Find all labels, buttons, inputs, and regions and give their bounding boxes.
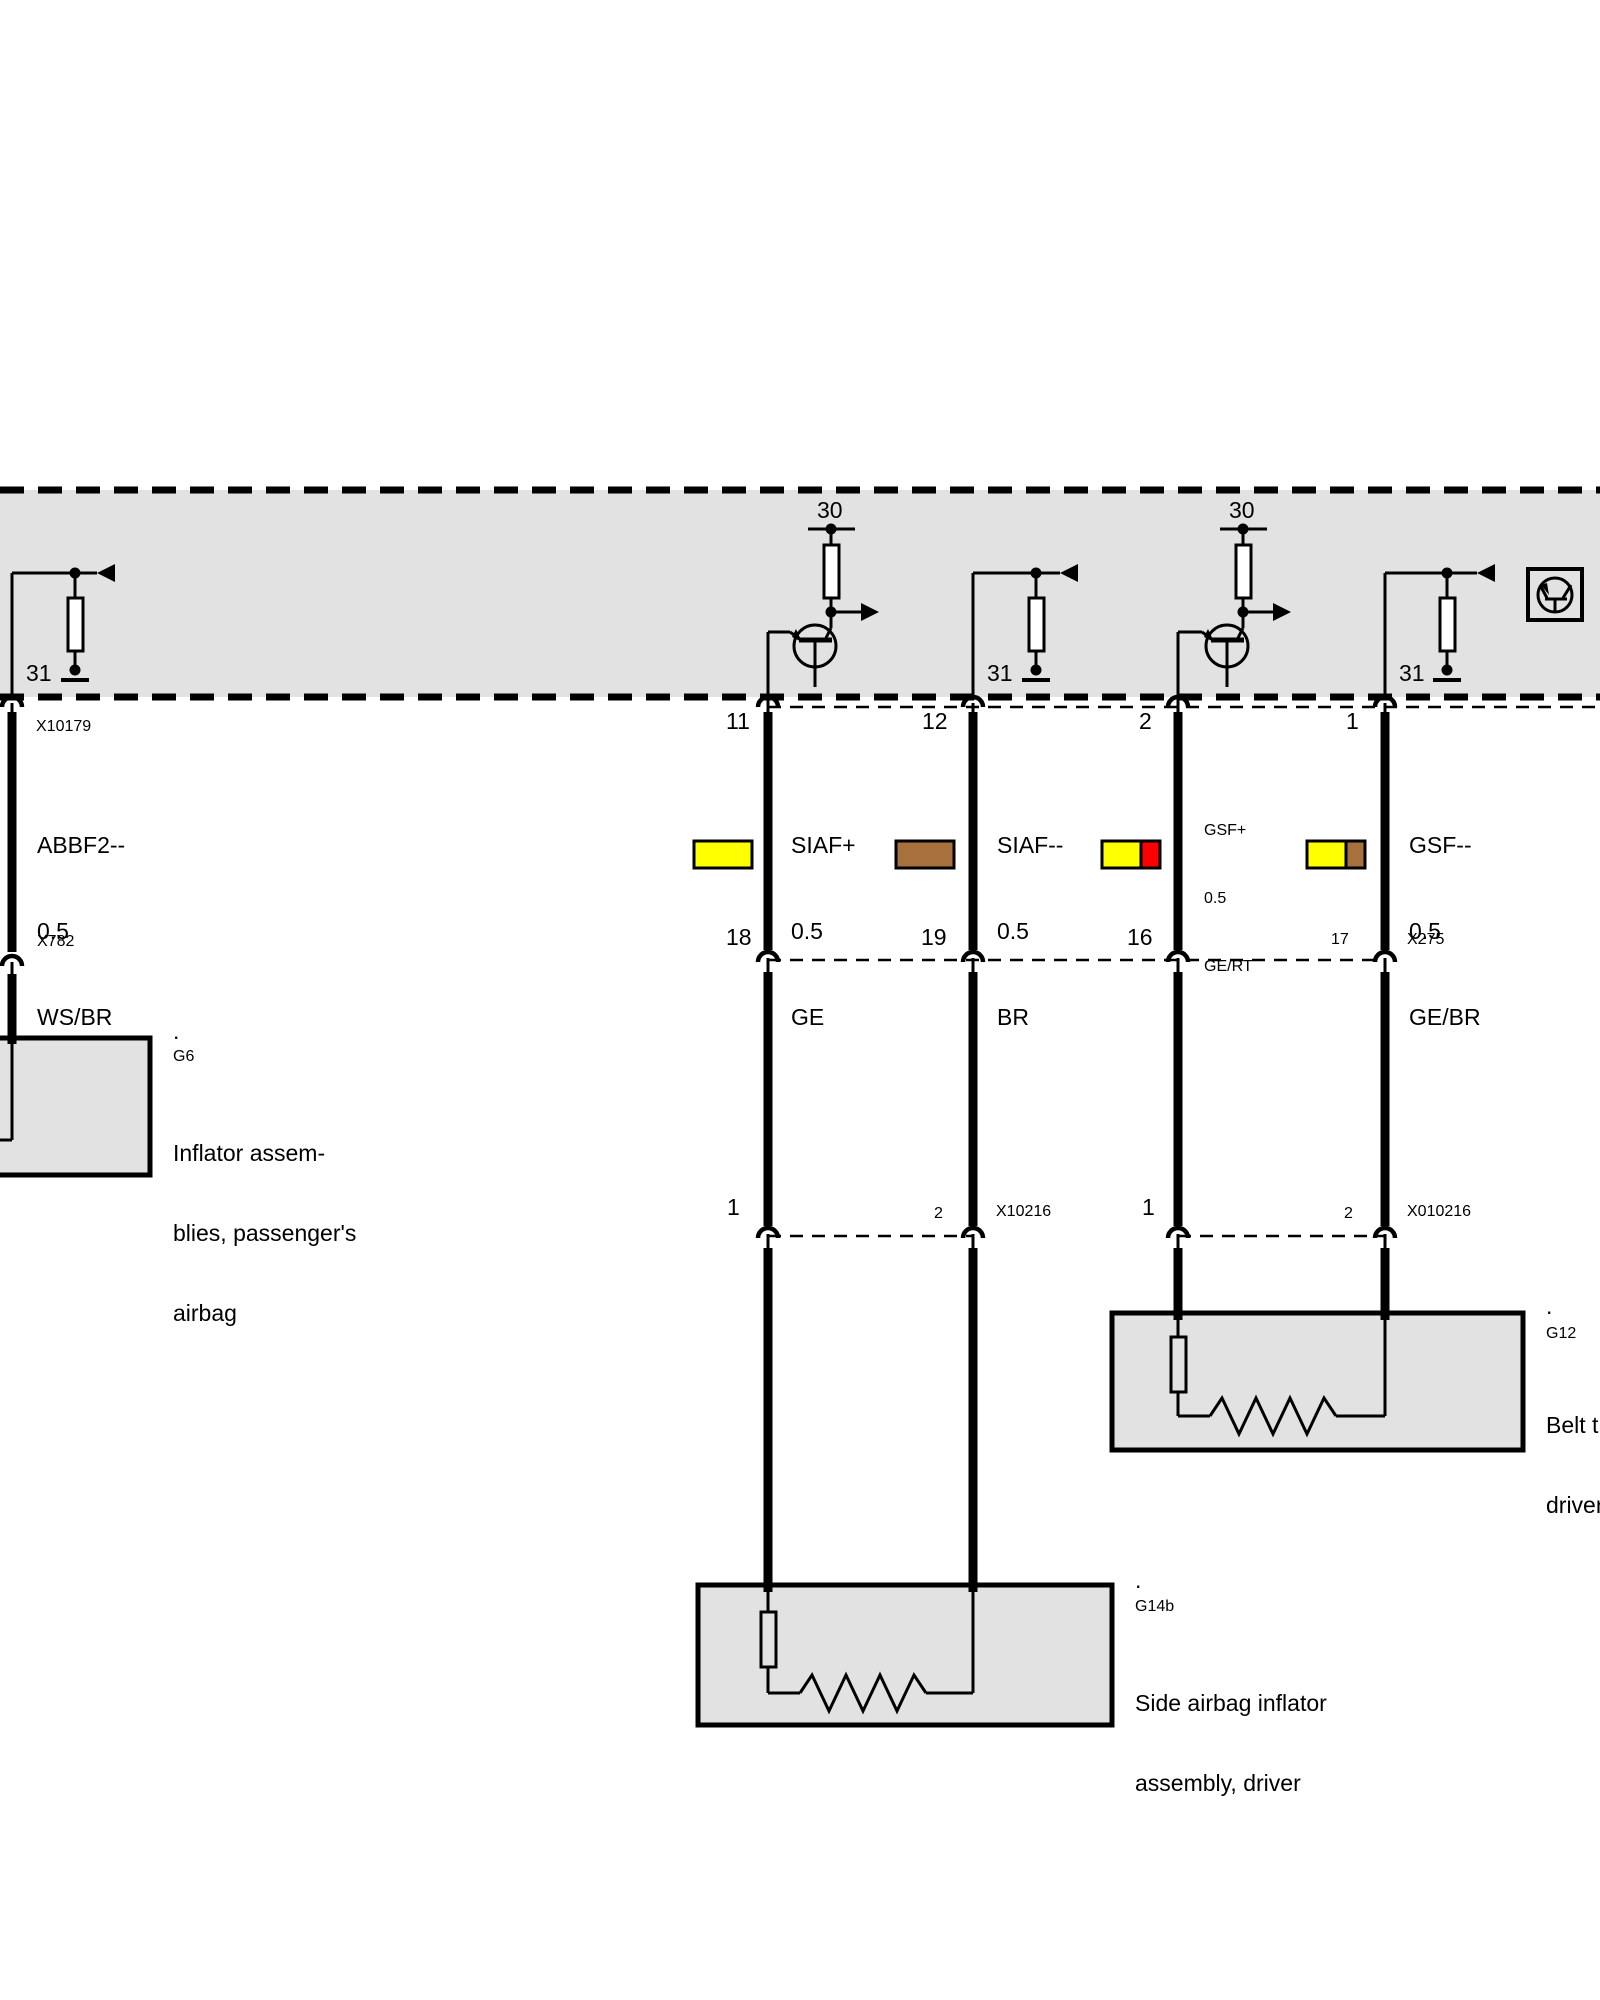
desc-line: driver [1546,1492,1600,1518]
connector-label-x10216: X10216 [996,1204,1051,1220]
component-marker-dot: . [173,1020,179,1043]
terminal-30-label: 30 [817,499,843,522]
connector-label-x010216: X010216 [1407,1204,1471,1220]
component-id-g12: G12 [1546,1326,1576,1342]
component-desc-g14b: Side airbag inflator assembly, driver [1135,1636,1327,1823]
pin-number: 16 [1127,926,1153,949]
terminal-30-label: 30 [1229,499,1255,522]
swatch-ge-rt-stripe [1141,841,1160,868]
wire-color-code: GE/BR [1409,1001,1481,1033]
swatch-ge-br-stripe [1346,841,1365,868]
squib-symbol [761,1612,776,1667]
module-band-fill [0,490,1600,697]
wiring-diagram-page: 30 30 31 31 31 11 12 2 1 X10179 ABBF2-- … [0,0,1600,2000]
x782-pin-symbol [2,956,22,980]
wire-color-code: GE [791,1001,856,1033]
pin-number: 2 [1139,710,1152,733]
control-module-band [0,490,1600,697]
fuse-symbol [1236,545,1251,598]
pin-number: 11 [726,710,750,733]
pin-number: 1 [1346,710,1359,733]
pin-number: 18 [726,926,752,949]
wire-gauge: 0.5 [997,915,1063,947]
terminal-31-label: 31 [987,662,1013,685]
wire-label-gsf-minus: GSF-- 0.5 GE/BR [1409,775,1481,1060]
ground-dot [1442,665,1453,676]
wire-label-siaf-minus: SIAF-- 0.5 BR [997,775,1063,1060]
resistor-symbol [68,598,83,651]
resistor-symbol [1440,598,1455,651]
row3-pin-symbols [758,1228,1395,1252]
connector-label-x782: X782 [37,934,74,950]
desc-line: airbag [173,1300,356,1326]
terminal-31-label: 31 [26,662,52,685]
component-id-g14b: G14b [1135,1599,1174,1615]
resistor-symbol [1029,598,1044,651]
squib-symbol [1171,1337,1186,1392]
signal-name: GSF+ [1204,815,1253,847]
swatch-ge [694,841,752,868]
signal-name: ABBF2-- [37,829,125,861]
wire-label-gsf-plus: GSF+ 0.5 GE/RT [1204,779,1253,1001]
wire-label-siaf-plus: SIAF+ 0.5 GE [791,775,856,1060]
wire-color-code: BR [997,1001,1063,1033]
wire-color-code: WS/BR [37,1001,125,1033]
fuse-symbol [824,545,839,598]
ground-dot [70,665,81,676]
pin-number: 2 [1344,1206,1353,1222]
pin-number: 17 [1331,932,1349,948]
signal-name: SIAF+ [791,829,856,861]
component-id-g6: G6 [173,1049,194,1065]
wire-color-code: GE/RT [1204,951,1253,983]
wire-gauge: 0.5 [791,915,856,947]
component-marker-dot: . [1546,1295,1552,1318]
wire-label-abbf2: ABBF2-- 0.5 WS/BR [37,775,125,1060]
pin-number: 1 [1142,1196,1155,1219]
pin-number: 19 [921,926,947,949]
ground-dot [1031,665,1042,676]
signal-name: SIAF-- [997,829,1063,861]
desc-line: Side airbag inflator [1135,1690,1327,1716]
desc-line: assembly, driver [1135,1770,1327,1796]
desc-line: Belt t [1546,1412,1600,1438]
pin-number: 2 [934,1206,943,1222]
wire-gauge: 0.5 [1204,883,1253,915]
desc-line: Inflator assem- [173,1140,356,1166]
signal-name: GSF-- [1409,829,1481,861]
pin-number: 1 [727,1196,740,1219]
connector-label-x10179: X10179 [36,719,91,735]
connector-label-x275: X275 [1407,932,1444,948]
swatch-br [896,841,954,868]
pin-number: 12 [922,710,948,733]
desc-line: blies, passenger's [173,1220,356,1246]
component-desc-g6: Inflator assem- blies, passenger's airba… [173,1086,356,1353]
component-marker-dot: . [1135,1569,1141,1592]
terminal-31-label: 31 [1399,662,1425,685]
component-desc-g12: Belt t driver [1546,1358,1600,1545]
